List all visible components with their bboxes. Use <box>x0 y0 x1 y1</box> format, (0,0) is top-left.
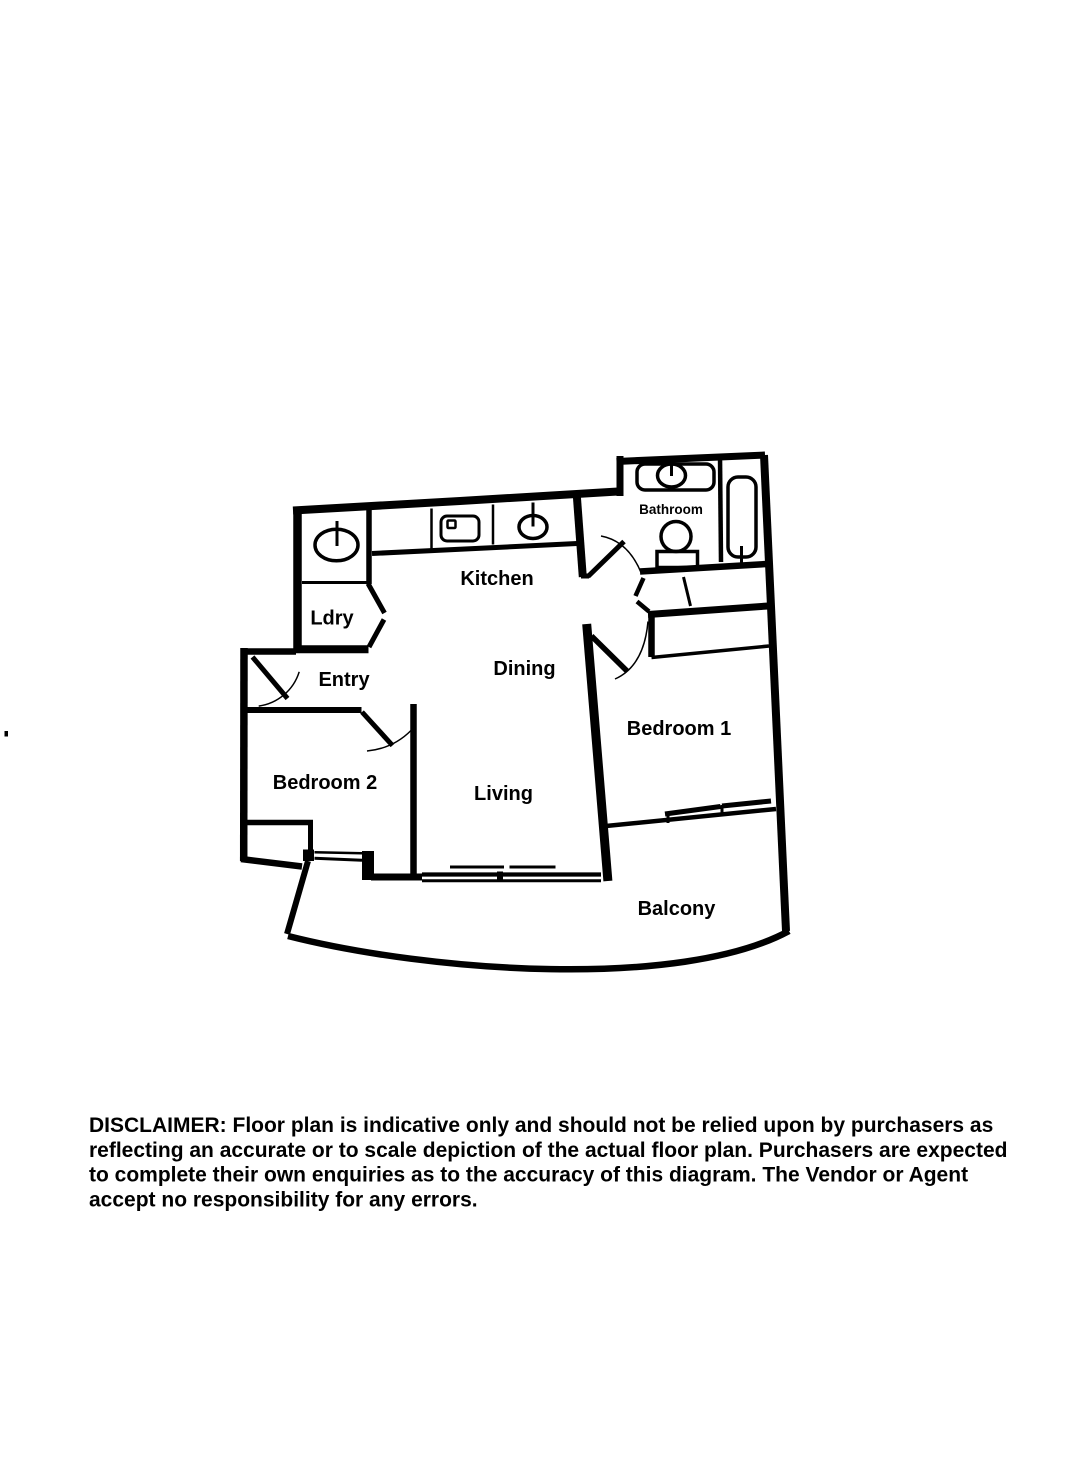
svg-text:Kitchen: Kitchen <box>460 568 533 590</box>
svg-text:Bedroom 1: Bedroom 1 <box>627 718 731 740</box>
svg-text:reflecting an accurate or to s: reflecting an accurate or to scale depic… <box>89 1139 1007 1162</box>
svg-text:Bedroom 2: Bedroom 2 <box>273 772 377 794</box>
svg-text:Entry: Entry <box>318 669 370 691</box>
svg-text:Living: Living <box>474 783 533 805</box>
svg-text:to complete their own enquirie: to complete their own enquiries as to th… <box>89 1164 968 1187</box>
svg-text:Balcony: Balcony <box>638 898 717 920</box>
svg-text:accept no responsibility for a: accept no responsibility for any errors. <box>89 1188 478 1211</box>
svg-text:Dining: Dining <box>493 658 555 680</box>
svg-text:Ldry: Ldry <box>310 608 354 630</box>
svg-text:Bathroom: Bathroom <box>639 502 703 517</box>
svg-text:DISCLAIMER: Floor plan is indi: DISCLAIMER: Floor plan is indicative onl… <box>89 1114 993 1137</box>
